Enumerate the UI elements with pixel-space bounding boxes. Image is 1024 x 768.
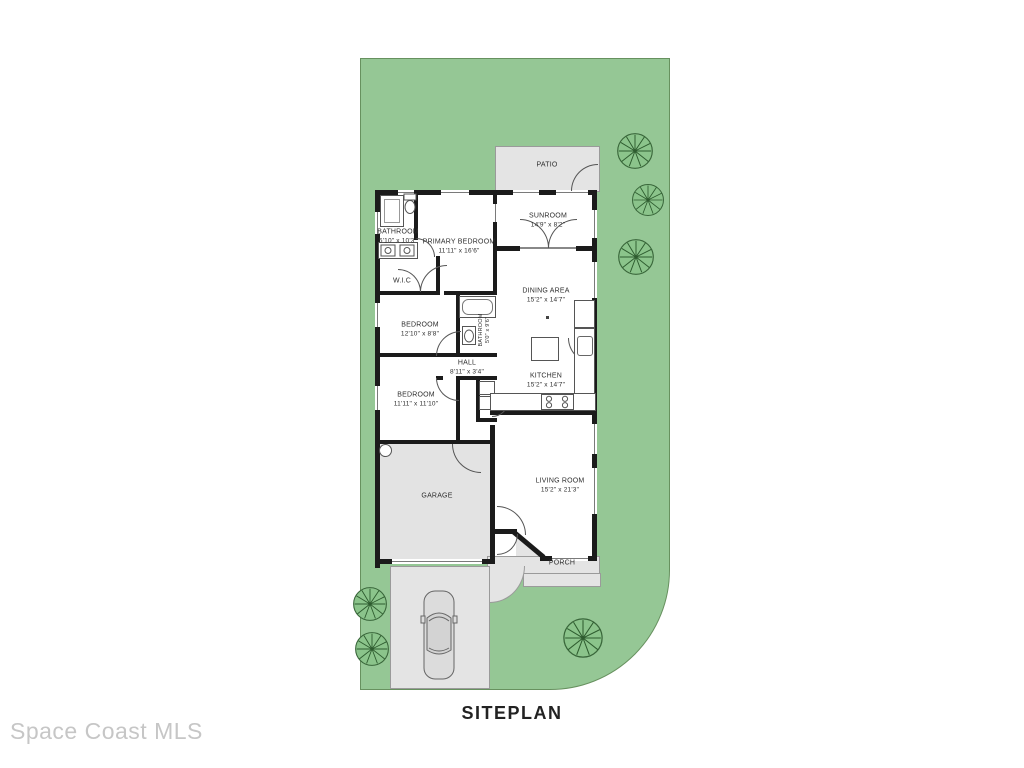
room-label-hall-bathroom: BATHROOM 5'0" x 9'6" (478, 314, 492, 347)
tree-icon (562, 617, 604, 659)
tree-icon (616, 132, 654, 170)
room-label-sunroom: SUNROOM 14'9" x 8'2" (529, 213, 567, 230)
page-title: SITEPLAN (461, 703, 562, 724)
siteplan-canvas: PATIO SUNROOM 14'9" x 8'2" BATHROOM 5'10… (0, 0, 1024, 768)
water-heater-icon (379, 444, 392, 457)
room-label-kitchen: KITCHEN 15'2" x 14'7" (527, 373, 565, 390)
wall (493, 190, 497, 204)
wall (497, 246, 520, 251)
tree-icon (354, 631, 390, 667)
room-label-hall: HALL 8'11" x 3'4" (450, 360, 484, 377)
room-label-bathroom: BATHROOM 5'10" x 10'3" (377, 229, 419, 246)
kitchen-counter-right (574, 328, 595, 394)
wall (576, 246, 597, 251)
sink-icon (462, 326, 476, 345)
window (592, 424, 597, 454)
stove-icon (541, 394, 574, 410)
shower-icon (380, 195, 404, 227)
room-label-garage: GARAGE (421, 493, 452, 502)
wall (444, 291, 497, 295)
room-label-porch: PORCH (549, 560, 575, 569)
car-icon (420, 588, 458, 682)
toilet-icon (403, 193, 417, 215)
window (375, 303, 380, 327)
window (592, 262, 597, 298)
window (592, 468, 597, 514)
garage-door (392, 559, 482, 564)
mls-watermark: Space Coast MLS (10, 718, 203, 745)
window (441, 190, 469, 195)
wall (493, 222, 497, 293)
room-label-patio: PATIO (537, 162, 558, 171)
window (513, 190, 539, 195)
room-label-bedroom-mid: BEDROOM 12'10" x 8'8" (401, 322, 439, 339)
window (592, 210, 597, 238)
tree-icon (631, 183, 665, 217)
room-label-primary-bedroom: PRIMARY BEDROOM 11'11" x 16'6" (423, 239, 496, 256)
kitchen-island (531, 337, 559, 361)
tree-icon (617, 238, 655, 276)
window (493, 204, 498, 222)
wall (490, 425, 495, 564)
room-label-bedroom-front: BEDROOM 11'11" x 11'10" (394, 392, 438, 409)
fridge-icon (574, 300, 595, 328)
walkway (523, 573, 601, 587)
room-label-living-room: LIVING ROOM 15'2" x 21'3" (536, 478, 585, 495)
tree-icon (352, 586, 388, 622)
ceiling-fan-dot (546, 316, 549, 319)
room-label-wic: W.I.C (393, 278, 411, 287)
window (375, 386, 380, 410)
room-label-dining-area: DINING AREA 15'2" x 14'7" (522, 288, 569, 305)
